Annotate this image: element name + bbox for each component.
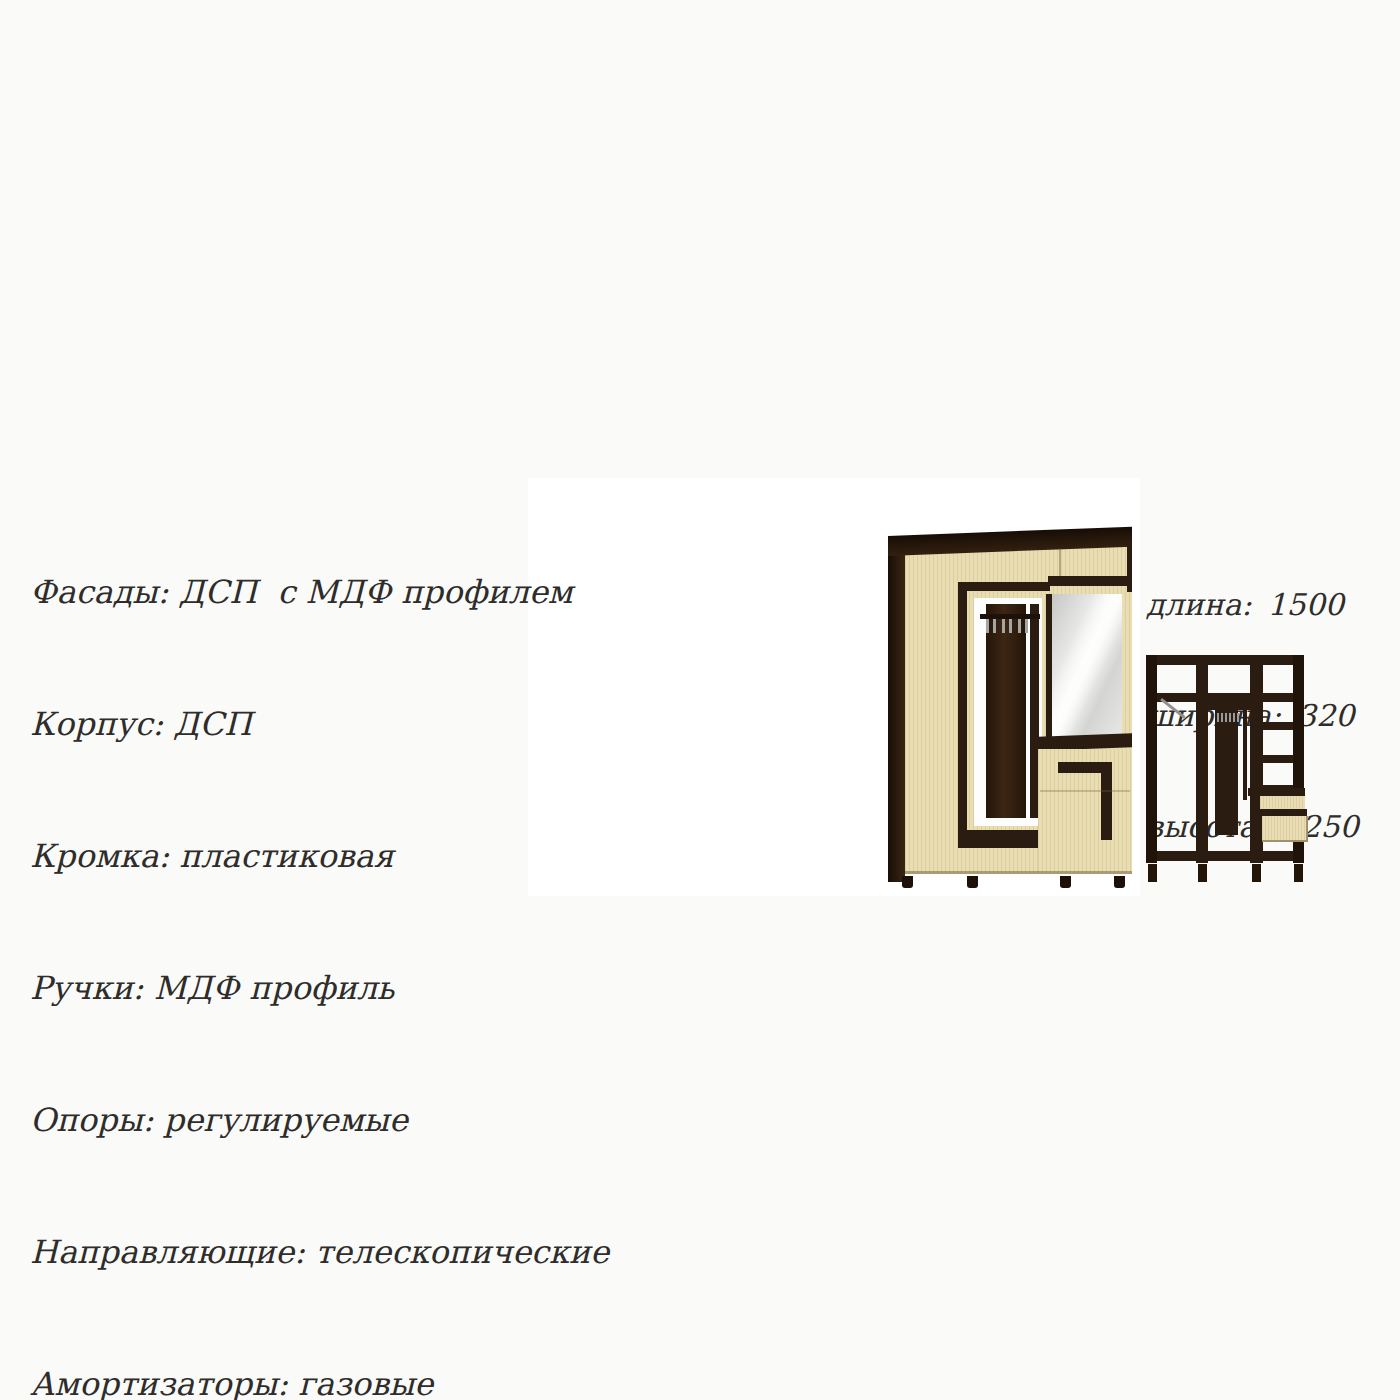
antresol-door-seam — [1059, 548, 1061, 576]
adjustable-foot — [902, 876, 913, 888]
spec-line-handles: Ручки: МДФ профиль — [30, 966, 902, 1010]
adjustable-foot — [1060, 876, 1071, 888]
adjustable-foot — [1252, 864, 1261, 882]
schematic-bottom-beam — [1146, 851, 1304, 861]
spec-line-guides: Направляющие: телескопические — [30, 1230, 902, 1274]
schematic-cabinet-drawer — [1260, 796, 1305, 809]
hallway-unit-photo — [888, 524, 1132, 896]
dimension-value: 1500 — [1268, 587, 1344, 622]
wardrobe-side-panel — [888, 540, 905, 882]
product-spec-sheet: Фасады: ДСП с МДФ профилем Корпус: ДСП К… — [0, 0, 1400, 1400]
mdf-frame-top-bar — [958, 582, 1050, 591]
hallway-unit-schematic — [1146, 646, 1310, 892]
coat-hook-icon — [1217, 713, 1223, 722]
adjustable-foot — [1114, 876, 1125, 888]
mirror-reflection — [1052, 594, 1122, 740]
mirror — [1052, 594, 1122, 740]
spec-line-edge: Кромка: пластиковая — [30, 834, 902, 878]
dimension-length: длина:1500 — [1146, 586, 1359, 623]
schematic-cabinet-door — [1262, 816, 1308, 842]
adjustable-foot — [967, 876, 978, 888]
specs-list: Фасады: ДСП с МДФ профилем Корпус: ДСП К… — [30, 482, 902, 1400]
spec-line-facades: Фасады: ДСП с МДФ профилем — [30, 570, 902, 614]
schematic-hook-panel — [1215, 710, 1238, 835]
coat-hook-icon — [1018, 619, 1028, 633]
spec-line-shock: Амортизаторы: газовые — [30, 1362, 902, 1400]
coat-hook-icon — [1225, 713, 1231, 722]
schematic-cabinet-top — [1248, 788, 1305, 796]
drawer-seam — [1040, 790, 1130, 792]
plinth-shadow — [905, 871, 1132, 874]
schematic-post-mid-left — [1196, 664, 1208, 863]
coat-hook-icon — [986, 619, 996, 633]
schematic-cabinet-divider — [1256, 809, 1307, 816]
schematic-post-left — [1146, 655, 1157, 863]
antresol-mdf-stripe — [1048, 576, 1132, 586]
schematic-shelf — [1263, 755, 1293, 763]
shoe-cabinet-frame-right — [1101, 762, 1112, 840]
adjustable-foot — [1198, 864, 1207, 882]
coat-hook-icon — [1233, 713, 1239, 722]
coat-hook-icon — [1002, 619, 1012, 633]
adjustable-foot — [1148, 864, 1157, 882]
schematic-top-beam — [1146, 655, 1304, 665]
schematic-hook-rail — [1208, 702, 1250, 710]
adjustable-foot — [1294, 864, 1303, 882]
coat-hook-panel — [986, 604, 1026, 818]
spec-line-body: Корпус: ДСП — [30, 702, 902, 746]
spec-line-supports: Опоры: регулируемые — [30, 1098, 902, 1142]
antresol-side-edge — [1127, 542, 1132, 592]
schematic-antresol-shelf — [1146, 693, 1304, 702]
dimension-label: длина: — [1146, 587, 1252, 622]
schematic-side-rail — [1243, 710, 1247, 800]
schematic-shelf — [1263, 722, 1293, 730]
mdf-frame-left-bar — [958, 582, 967, 848]
